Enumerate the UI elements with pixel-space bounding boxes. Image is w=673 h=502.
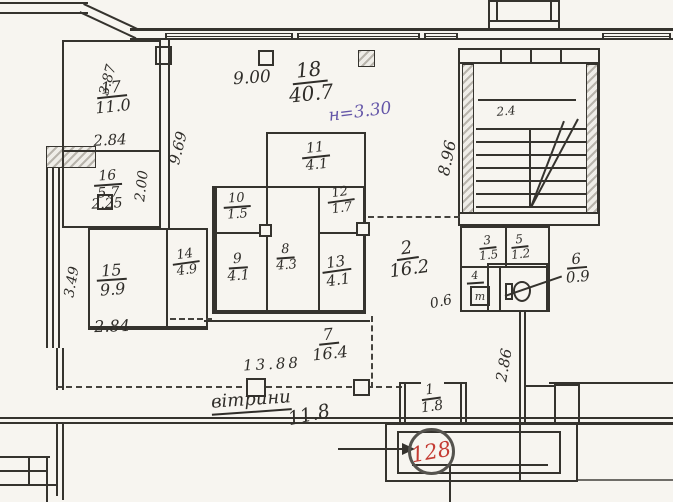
room-area: 1.5 [479, 248, 499, 263]
premise-number: 128 [410, 436, 454, 467]
dashed-boundary [170, 318, 212, 320]
wall-pier [258, 50, 274, 66]
room-area: 9.9 [99, 280, 126, 299]
room-10-label: 10 1.5 [223, 191, 252, 223]
wall-top [130, 28, 673, 40]
dashed-boundary [371, 316, 373, 388]
door-post [259, 224, 272, 237]
stairwell-side-wall [586, 64, 598, 214]
room-area: 1.8 [420, 398, 444, 416]
room-area: 4.9 [176, 263, 198, 280]
premise-number-circle: 128 [408, 428, 455, 475]
stair-treads [476, 128, 586, 210]
room-8-label: 8 4.3 [275, 242, 298, 273]
wall-segment [524, 385, 554, 387]
wall-8-13-divider [318, 186, 320, 314]
room-area: 0.9 [565, 268, 590, 286]
room-5-label: 5 1.2 [509, 232, 531, 262]
wall-top-left-corner [0, 2, 88, 14]
entry-vestibule-inner-line [496, 0, 498, 20]
porch-left-step-edge [28, 456, 30, 486]
room-area: 4.1 [325, 270, 351, 289]
door-post [356, 222, 370, 236]
wall-15-14-divider [166, 228, 168, 330]
room-9-label: 9 4.1 [226, 251, 250, 285]
room-1-label: 1 1.8 [418, 381, 445, 416]
room-11-label: 11 4.1 [300, 140, 331, 175]
wall-17-hall [168, 40, 170, 228]
room-area: 16.2 [388, 257, 430, 282]
dashed-boundary [368, 216, 460, 218]
dim-11-8: 11.8 [286, 400, 332, 430]
room-area: 1.2 [511, 247, 531, 262]
room-15-label: 15 9.9 [96, 261, 129, 300]
dim-13-88: 13.88 [243, 353, 302, 374]
window [165, 33, 293, 39]
window [424, 33, 458, 39]
porch-left-step [0, 470, 46, 472]
porch-left-step [0, 456, 50, 458]
dim-2-84-room17: 2.84 [93, 130, 127, 150]
stair-landing-line [478, 99, 576, 101]
ceiling-height-note: н=3.30 [327, 98, 392, 126]
room-3-label: 3 1.5 [477, 233, 499, 263]
floor-plan: т 128 [0, 0, 673, 502]
dim-9-00: 9.00 [232, 67, 271, 90]
wall-extension-right [578, 423, 673, 425]
dim-2-25: 2.25 [91, 195, 123, 213]
dim-0-6: 0.6 [428, 292, 453, 312]
fixture-letter: т [475, 290, 485, 303]
room-12-label: 12 1.7 [326, 184, 356, 217]
dim-3-49: 3.49 [61, 265, 82, 298]
room-area: 1.5 [227, 207, 249, 222]
entry-vestibule-inner-line [550, 0, 552, 20]
entrance-porch-tick [449, 466, 451, 502]
wall-below-sanitary [524, 312, 526, 425]
shopfront-post [353, 379, 370, 396]
porch-left-step-edge [46, 456, 48, 502]
premise-arrow-line [338, 448, 404, 450]
room-7-label: 7 16.4 [309, 324, 348, 364]
room-area: 16.4 [311, 343, 348, 364]
stairwell-top-tick [560, 48, 562, 62]
vitryny-label: вітрини [210, 386, 291, 416]
wall-left-lower [56, 348, 58, 390]
dim-2-84-room15: 2.84 [94, 316, 130, 336]
room-area: 4.1 [227, 268, 250, 285]
room-4-label: 4 [466, 269, 484, 284]
entry-vestibule-base-line [488, 20, 560, 22]
room-area: 11.0 [94, 96, 131, 117]
wall-10-9-divider [212, 232, 266, 234]
fixture-mark-t: т [470, 286, 490, 306]
wall-left-lower [62, 348, 64, 390]
room-area: 40.7 [288, 81, 335, 107]
dim-2-86: 2.86 [492, 347, 516, 383]
stairwell-top-tick [500, 48, 502, 62]
window [297, 33, 420, 39]
room-area: 1.7 [331, 201, 353, 218]
wall-3-5-divider [505, 225, 507, 268]
room-14-label: 14 4.9 [171, 246, 201, 279]
stairwell-top-tick [530, 48, 532, 62]
stairwell-side-wall [462, 64, 474, 214]
room-6-label: 6 0.9 [564, 250, 591, 286]
dim-2-4: 2.4 [496, 103, 516, 119]
stair-center-line [529, 128, 531, 208]
wall-17-16-divider [62, 150, 161, 152]
room-2-label: 2 16.2 [385, 236, 430, 282]
wall-below-central-block [204, 320, 370, 322]
wall-9-8-divider [266, 186, 268, 314]
dim-8-96: 8.96 [434, 139, 460, 178]
porch-left-wall [62, 424, 64, 500]
room-13-label: 13 4.1 [320, 252, 354, 290]
wall-extension-right [578, 479, 673, 481]
room-area: 4.1 [305, 157, 329, 174]
wall-pier [358, 50, 375, 67]
shopfront-wall-line [0, 417, 673, 419]
window-band-center-line [52, 152, 54, 348]
window [602, 33, 671, 39]
dashed-shopfront-line [56, 386, 402, 388]
room-18-label: 18 40.7 [285, 57, 334, 107]
stairwell-top-band [458, 62, 600, 64]
room-1-top-edge [444, 382, 466, 384]
room-area: 4.3 [276, 258, 298, 273]
stairwell-bottom-band [458, 212, 600, 214]
room-number: 4 [466, 269, 484, 284]
